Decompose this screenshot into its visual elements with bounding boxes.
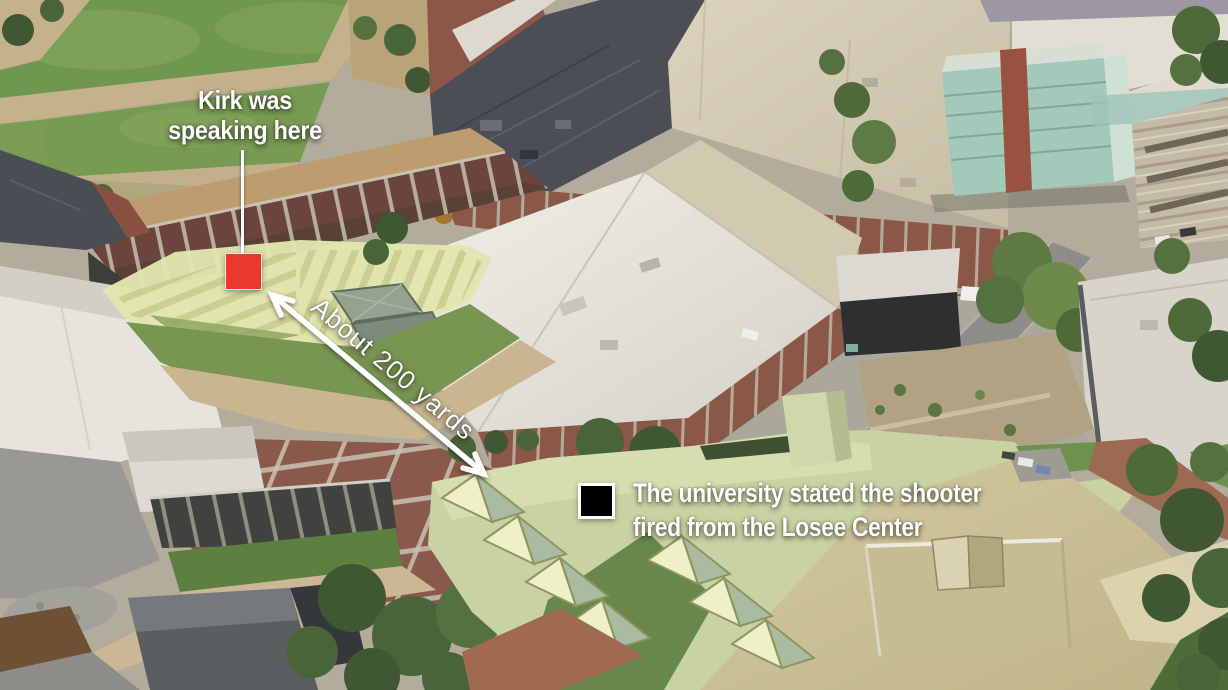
speaker-label-line1: Kirk was — [168, 85, 322, 115]
shooter-label-line2: fired from the Losee Center — [633, 510, 981, 544]
shooter-label-line1: The university stated the shooter — [633, 476, 981, 510]
annotated-aerial-map: Kirk was speaking here About 200 yards T… — [0, 0, 1228, 690]
distance-arrow — [250, 275, 510, 495]
teal-building — [930, 44, 1136, 212]
speaker-location-label: Kirk was speaking here — [168, 85, 322, 145]
distance-arrow-shaft — [276, 298, 480, 470]
black-building-walls — [840, 292, 961, 356]
shooter-location-label: The university stated the shooter fired … — [633, 476, 981, 544]
speaker-label-line2: speaking here — [168, 115, 322, 145]
shooter-marker — [578, 483, 615, 519]
speaker-leader-line — [241, 150, 244, 253]
